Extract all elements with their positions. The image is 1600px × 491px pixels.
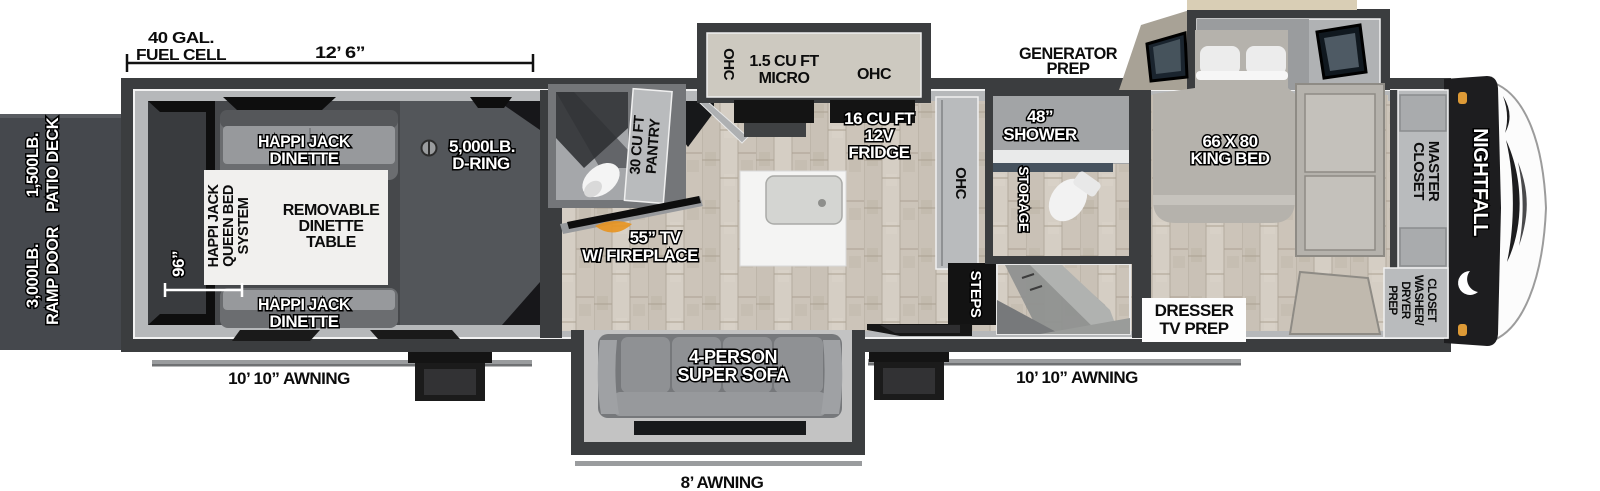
svg-text:OHC: OHC [952,167,969,200]
svg-text:CLOSET: CLOSET [1410,142,1427,200]
svg-text:55” TV: 55” TV [630,228,682,247]
svg-text:PATIO DECK: PATIO DECK [44,117,62,212]
svg-text:DINETTE: DINETTE [299,218,365,235]
svg-text:4-PERSON: 4-PERSON [689,347,777,367]
svg-text:DRESSER: DRESSER [1155,301,1234,320]
svg-text:SYSTEM: SYSTEM [236,197,252,254]
svg-text:8’ AWNING: 8’ AWNING [681,473,764,491]
svg-text:PREP: PREP [1047,60,1090,78]
svg-text:SHOWER: SHOWER [1003,125,1077,144]
svg-text:10’ 10” AWNING: 10’ 10” AWNING [1016,368,1138,387]
svg-text:MICRO: MICRO [759,70,810,87]
svg-text:DINETTE: DINETTE [269,149,338,168]
svg-text:FUEL CELL: FUEL CELL [136,47,227,64]
svg-text:3,000LB.: 3,000LB. [24,244,42,308]
svg-text:HAPPI JACK: HAPPI JACK [206,184,222,268]
svg-text:CLOSET: CLOSET [1425,278,1437,322]
svg-text:W/ FIREPLACE: W/ FIREPLACE [582,246,698,265]
svg-text:1,500LB.: 1,500LB. [24,133,42,197]
svg-text:FRIDGE: FRIDGE [848,143,909,162]
svg-text:1.5 CU FT: 1.5 CU FT [749,53,819,70]
svg-text:RAMP DOOR: RAMP DOOR [44,226,62,324]
svg-text:QUEEN BED: QUEEN BED [221,185,237,267]
svg-text:TABLE: TABLE [306,234,356,251]
svg-text:STORAGE: STORAGE [1016,166,1032,232]
svg-text:OHC: OHC [720,48,737,81]
svg-text:WASHER/: WASHER/ [1412,275,1424,326]
svg-text:PREP: PREP [1386,285,1398,315]
svg-text:48”: 48” [1027,107,1053,126]
svg-text:OHC: OHC [857,66,892,83]
svg-text:SUPER SOFA: SUPER SOFA [677,365,789,385]
svg-text:96”: 96” [169,251,188,277]
svg-text:40 GAL.: 40 GAL. [148,30,214,47]
svg-text:STEPS: STEPS [967,271,984,318]
svg-text:NIGHTFALL: NIGHTFALL [1469,128,1491,236]
svg-text:10’ 10” AWNING: 10’ 10” AWNING [228,369,350,388]
svg-text:12’ 6”: 12’ 6” [315,44,365,62]
svg-text:TV PREP: TV PREP [1159,319,1228,338]
svg-text:REMOVABLE: REMOVABLE [283,202,380,219]
svg-text:DINETTE: DINETTE [269,312,338,331]
svg-text:DRYER: DRYER [1399,281,1411,320]
svg-text:KING BED: KING BED [1190,149,1269,168]
svg-text:D-RING: D-RING [452,154,510,173]
